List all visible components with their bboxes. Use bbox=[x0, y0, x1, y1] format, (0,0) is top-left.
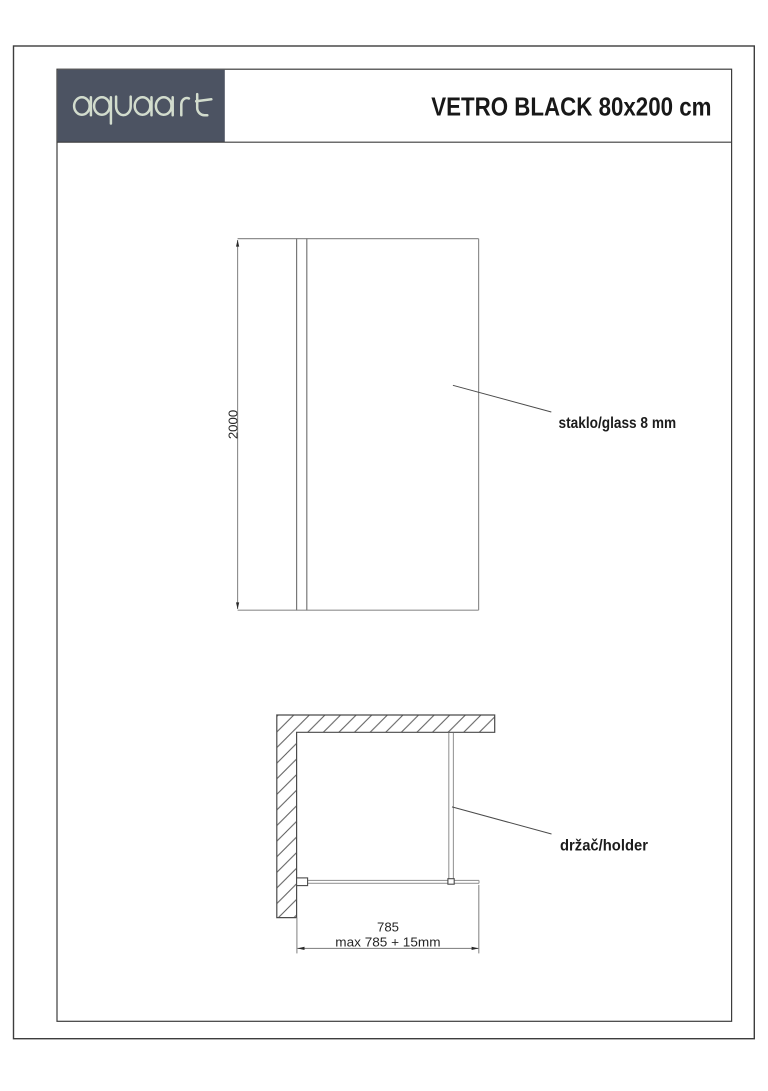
svg-text:staklo/glass 8 mm: staklo/glass 8 mm bbox=[559, 415, 677, 432]
svg-text:držač/holder: držač/holder bbox=[560, 837, 648, 854]
svg-text:VETRO BLACK 80x200 cm: VETRO BLACK 80x200 cm bbox=[431, 91, 711, 121]
svg-text:785: 785 bbox=[377, 920, 399, 935]
svg-text:2000: 2000 bbox=[225, 410, 240, 439]
svg-text:max 785 + 15mm: max 785 + 15mm bbox=[335, 934, 440, 949]
